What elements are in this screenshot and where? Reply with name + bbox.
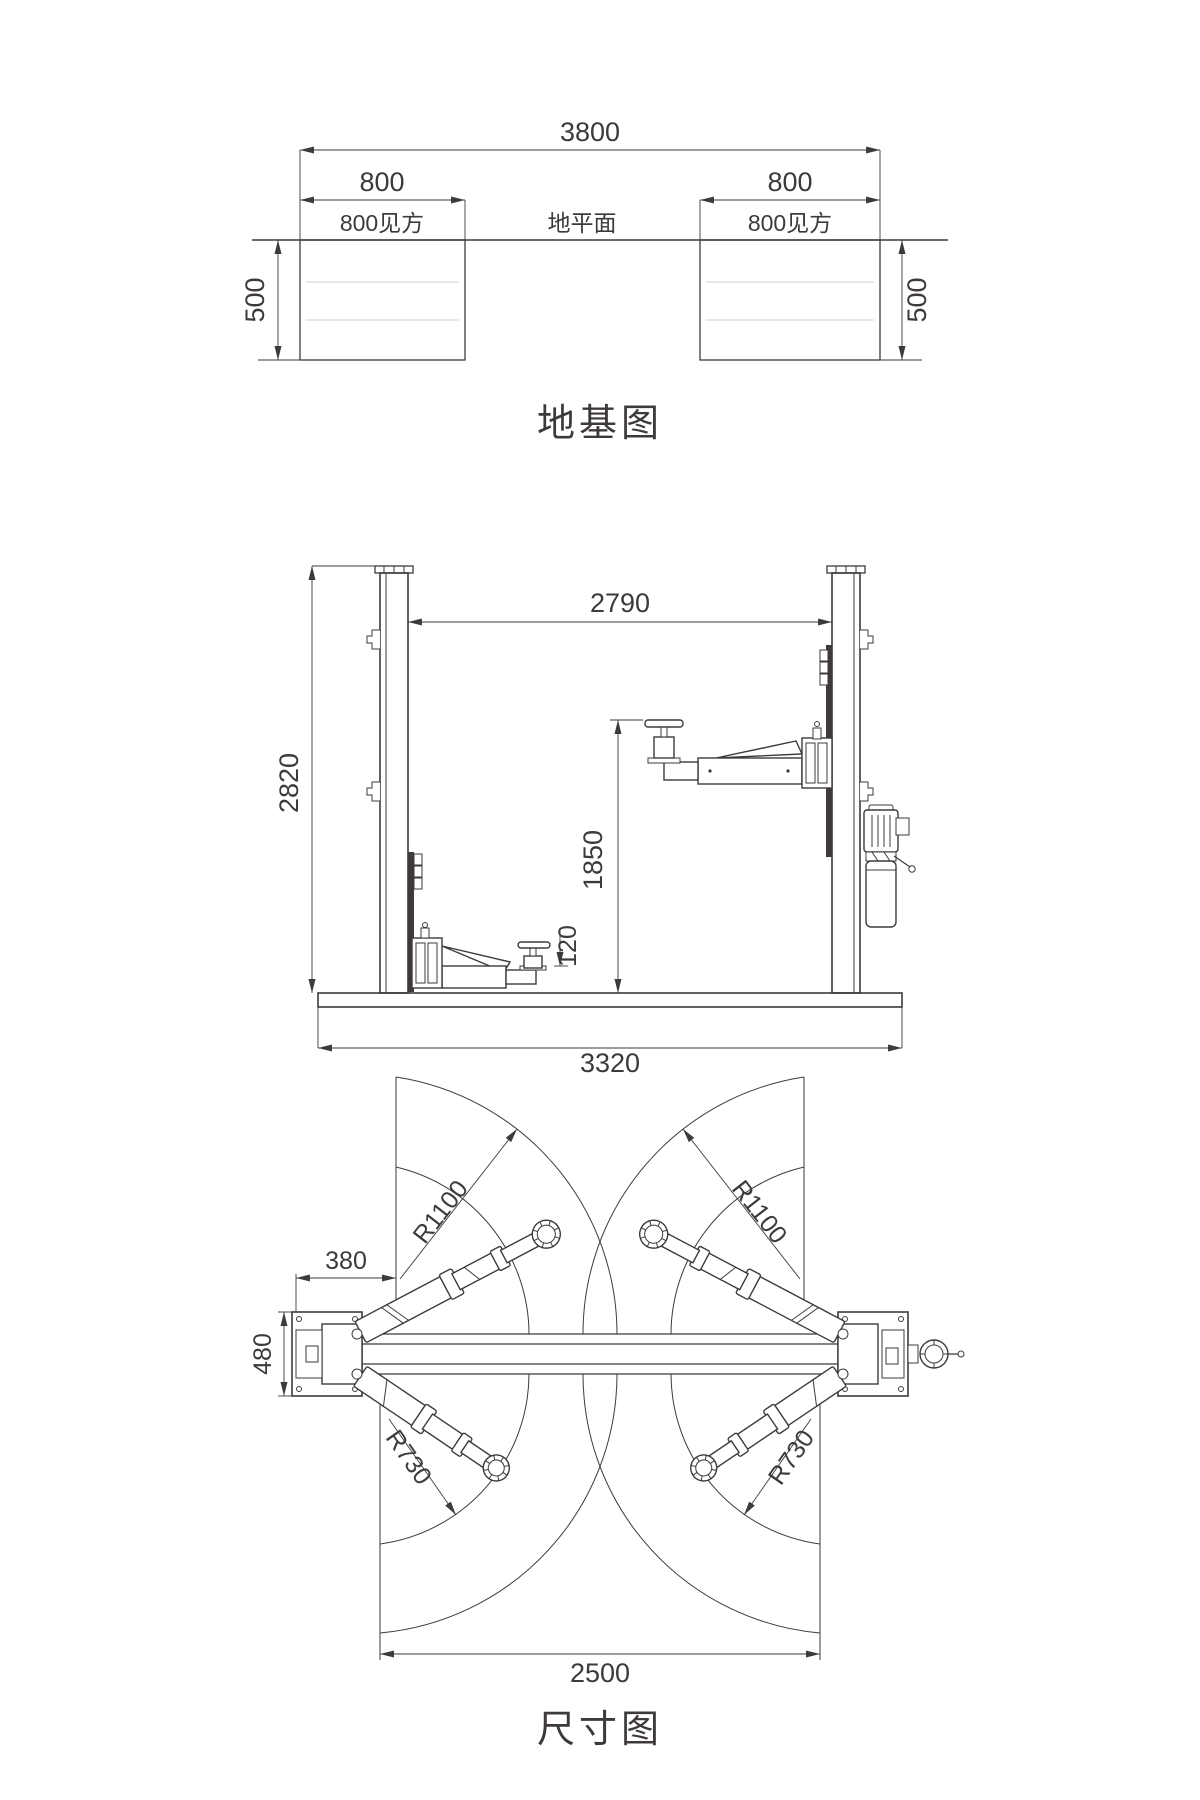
dim-480-label: 480: [249, 1333, 277, 1375]
raised-arm-pad: [645, 720, 683, 763]
swing-boundary-lines: [380, 1077, 820, 1660]
right-post: [827, 566, 873, 993]
power-unit: [864, 805, 915, 927]
radius-labels: R1100 R1100 R730 R730: [380, 1129, 820, 1515]
dim-2820: 2820: [274, 566, 376, 993]
dim-3800-label: 3800: [560, 117, 620, 147]
foundation-title: 地基图: [537, 403, 663, 445]
dim-2790-label: 2790: [590, 588, 650, 618]
dim-500-left-label: 500: [240, 277, 270, 322]
foundation-pad-left: [300, 240, 465, 360]
dim-480: 480: [249, 1312, 293, 1396]
swing-arm-upper-right: [635, 1215, 854, 1348]
dim-1850: 1850: [578, 720, 643, 993]
dim-3320-label: 3320: [580, 1048, 640, 1078]
lift-technical-drawing: 3800 800 800 800见方 地平面 800见方 500 500 地基图: [0, 0, 1200, 1800]
dim-1850-label: 1850: [578, 830, 608, 890]
right-post-tab-upper: [860, 630, 873, 649]
dim-120-label: 120: [554, 925, 582, 967]
lowered-arm-assembly: [408, 852, 550, 992]
dim-2500: 2500: [380, 1654, 820, 1688]
dim-2820-label: 2820: [274, 753, 304, 813]
label-r1100-left: R1100: [408, 1175, 474, 1249]
base-plate-right: [838, 1312, 908, 1396]
plan-view-diagram: R1100 R1100 R730 R730 380 480 2500 尺寸图: [249, 1077, 964, 1751]
dim-800-left-label: 800: [359, 167, 404, 197]
floor-plate: [318, 993, 902, 1007]
pad-square-label-left: 800见方: [340, 210, 424, 236]
ground-label: 地平面: [548, 210, 617, 236]
dim-2790: 2790: [408, 588, 832, 622]
plan-view-title: 尺寸图: [537, 1709, 663, 1751]
dim-500-right-label: 500: [902, 277, 932, 322]
left-post-tab-lower: [367, 782, 380, 801]
dim-380-label: 380: [325, 1247, 367, 1275]
swing-arcs: [380, 1077, 820, 1633]
dim-120: 120: [554, 925, 582, 967]
dim-800-right-label: 800: [767, 167, 812, 197]
label-r730-right: R730: [763, 1425, 820, 1490]
dim-380: 380: [296, 1247, 396, 1312]
front-view-diagram: 2820 2790 1850 120 3320: [274, 566, 915, 1078]
drawing-sheet: 3800 800 800 800见方 地平面 800见方 500 500 地基图: [0, 0, 1200, 1800]
label-r730-left: R730: [380, 1425, 437, 1490]
swing-arm-upper-left: [346, 1215, 565, 1348]
rails: [362, 1334, 838, 1374]
label-r1100-right: R1100: [726, 1175, 792, 1249]
foundation-diagram: 3800 800 800 800见方 地平面 800见方 500 500 地基图: [240, 117, 948, 445]
base-plate-left: [292, 1312, 362, 1396]
left-post: [367, 566, 413, 993]
right-post-tab-lower: [860, 782, 873, 801]
lowered-arm-pad: [518, 942, 550, 970]
dim-2500-label: 2500: [570, 1658, 630, 1688]
foundation-pad-right: [700, 240, 880, 360]
dim-500-right: 500: [880, 240, 932, 360]
pad-square-label-right: 800见方: [748, 210, 832, 236]
power-unit-plan: [908, 1340, 964, 1368]
left-post-tab-upper: [367, 630, 380, 649]
raised-arm-assembly: [645, 645, 832, 857]
dim-500-left: 500: [240, 240, 300, 360]
dim-3320: 3320: [318, 1007, 902, 1078]
